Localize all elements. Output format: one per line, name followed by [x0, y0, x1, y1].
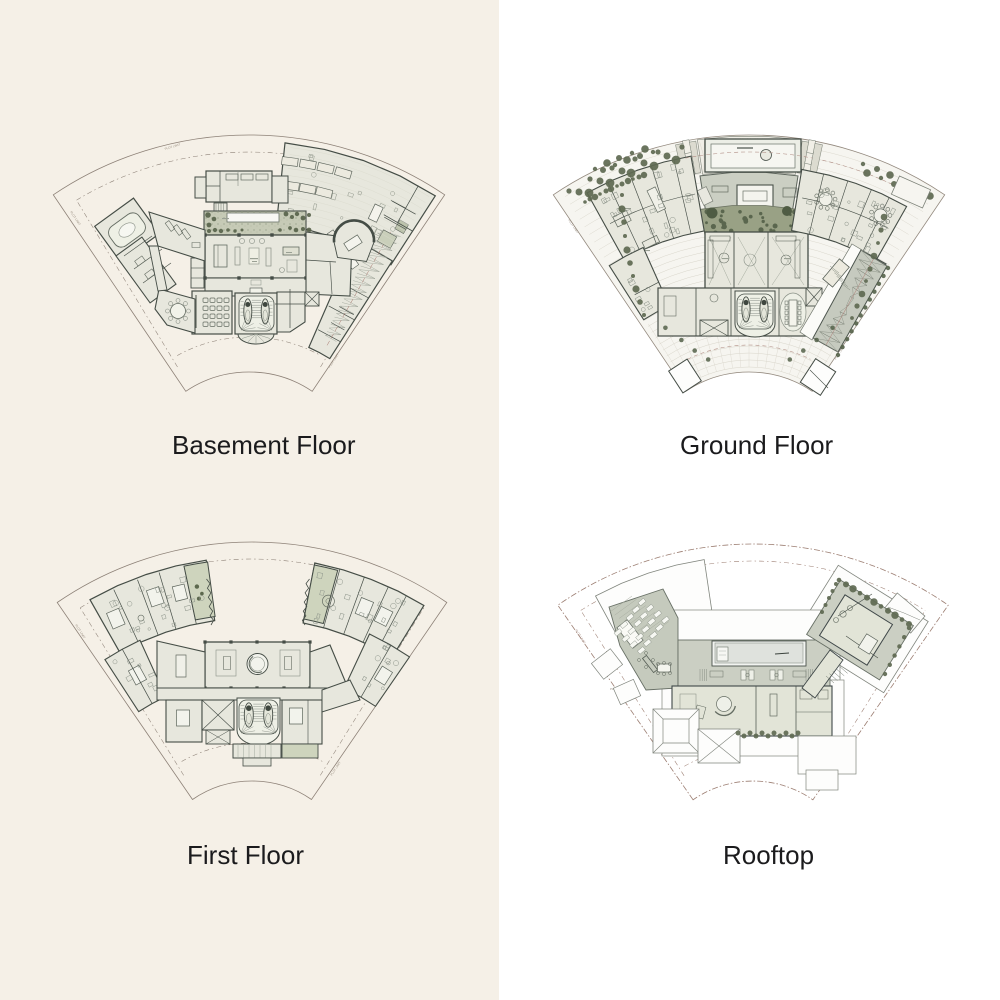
svg-text:PLOT LIMIT: PLOT LIMIT [574, 628, 586, 644]
svg-text:PLOT LIMIT: PLOT LIMIT [329, 761, 341, 777]
svg-text:PLOT LIMIT: PLOT LIMIT [69, 210, 82, 226]
svg-text:PLOT LIMIT: PLOT LIMIT [74, 623, 86, 639]
svg-text:PLOT LIMIT: PLOT LIMIT [164, 142, 181, 151]
